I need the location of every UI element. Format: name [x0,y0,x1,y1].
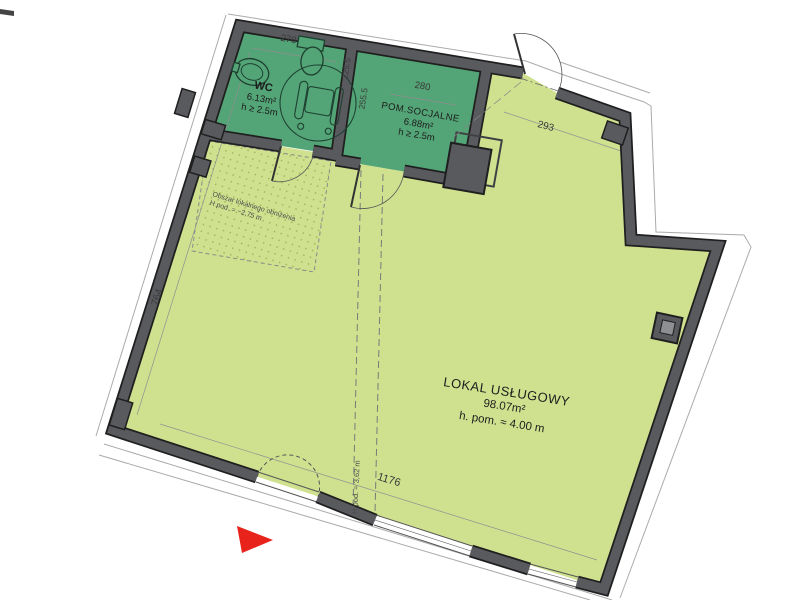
wall-box [652,313,683,344]
floor-plan-drawing: WC 6.13m² h ≥ 2.5m POM.SOCJALNE 6.88m² h… [0,0,800,600]
floor-plan-page: WC 6.13m² h ≥ 2.5m POM.SOCJALNE 6.88m² h… [0,0,800,600]
entrance-marker-icon [237,526,273,553]
edge-mark [0,9,14,16]
